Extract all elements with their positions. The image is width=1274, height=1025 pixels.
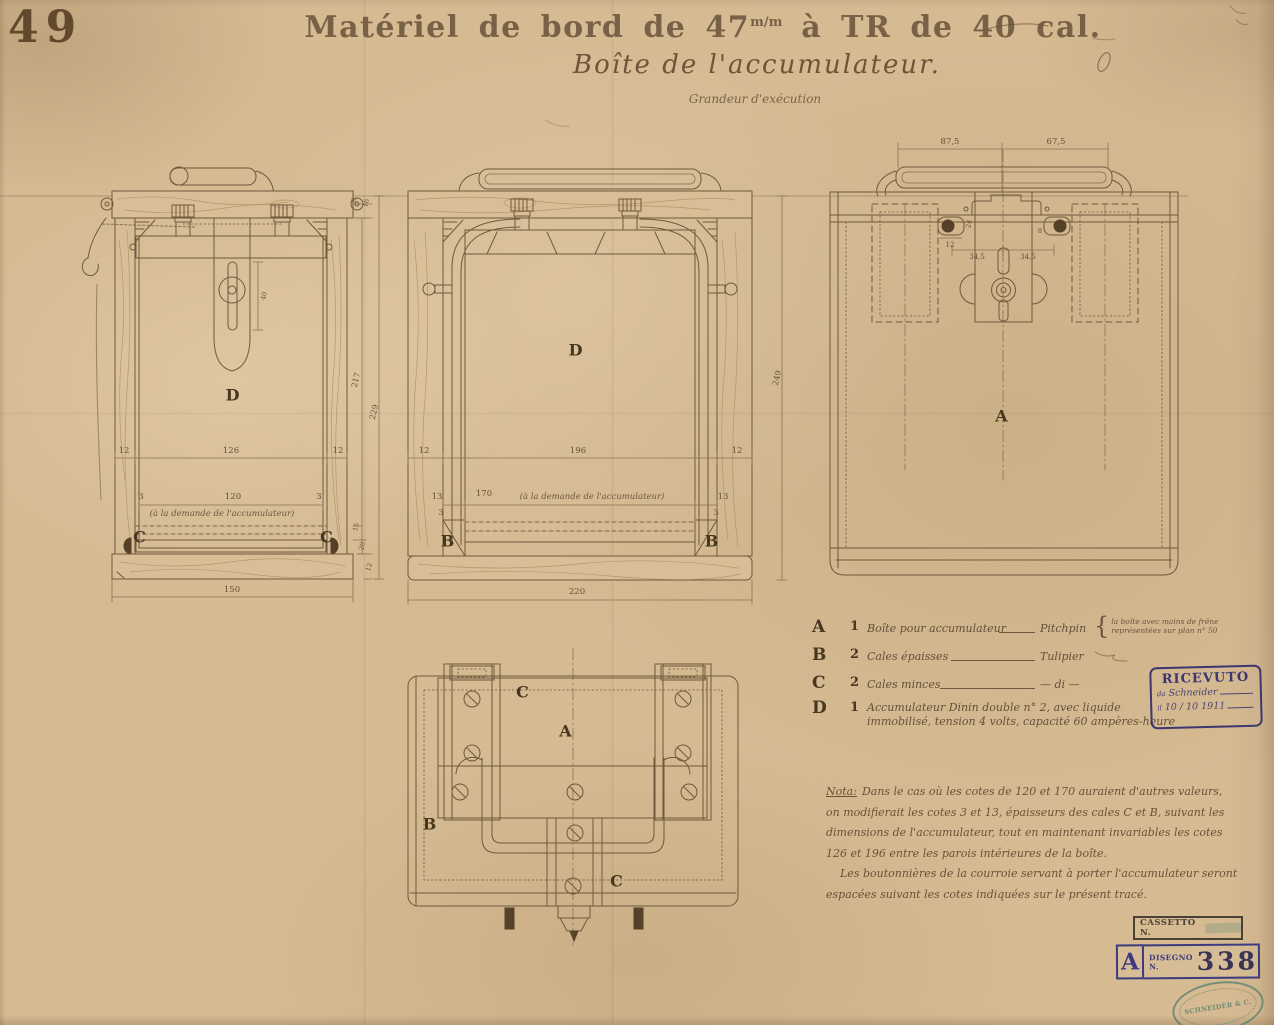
legend-qty: 2 (850, 675, 859, 690)
legend-qty: 1 (850, 619, 859, 634)
legend-part-name: Boîte pour accumulateur (867, 622, 1006, 635)
legend-note: { la boîte avec mains de frênereprésenté… (1094, 617, 1219, 635)
legend-letter: D (812, 698, 827, 718)
cassetto-stamp: CASSETTO N. (1133, 916, 1243, 940)
disegno-letter: A (1118, 946, 1144, 977)
legend-letter: A (812, 617, 825, 637)
ricevuto-title: RICEVUTO (1156, 670, 1254, 688)
nota-line: Nota:Dans le cas où les cotes de 120 et … (826, 782, 1256, 803)
disegno-stamp: A DISEGNO N. 338 (1116, 943, 1260, 979)
left-view-linework (82, 167, 384, 602)
legend-row-a: A 1 Boîte pour accumulateur Pitchpin { l… (812, 617, 1272, 647)
legend-note-text: la boîte avec mains de frênereprésentées… (1111, 617, 1218, 635)
legend-letter: C (812, 673, 826, 693)
nota-line: 126 et 196 entre les parois intérieures … (826, 844, 1256, 865)
cassetto-label: CASSETTO N. (1140, 918, 1199, 938)
nota-line: Les boutonnières de la courroie servant … (826, 864, 1256, 885)
legend-part-name: Cales épaisses (867, 650, 948, 663)
nota-label: Nota: (826, 785, 857, 798)
legend-part-name: Cales minces (867, 678, 941, 691)
bottom-view-linework (408, 648, 738, 948)
legend-material: Pitchpin (1040, 622, 1086, 635)
drawing-sheet: 49 Matériel de bord de 47m/m à TR de 40 … (0, 0, 1274, 1025)
legend-dash-line (951, 660, 1035, 661)
legend-material: — di — (1040, 678, 1080, 691)
disegno-right: DISEGNO N. 338 (1144, 946, 1258, 978)
nota-line: espacées suivant les cotes indiquées sur… (826, 885, 1256, 906)
center-view-linework (408, 169, 787, 604)
disegno-label: DISEGNO N. (1149, 952, 1193, 970)
ricevuto-stamp: RICEVUTO da Schneider il 10 / 10 1911 (1149, 665, 1263, 730)
legend-part-name: Accumulateur Dinin double n° 2, avec liq… (867, 701, 1175, 729)
nota-line: on modifierait les cotes 3 et 13, épaiss… (826, 803, 1256, 824)
legend-dash-line (999, 632, 1035, 633)
nota-block: Nota:Dans le cas où les cotes de 120 et … (826, 782, 1256, 905)
cassetto-smudge (1205, 922, 1241, 933)
legend-qty: 2 (850, 647, 859, 662)
disegno-number: 338 (1197, 947, 1258, 976)
legend-dash-line (940, 688, 1035, 689)
legend-material: Tulipier (1040, 650, 1084, 663)
nota-line: dimensions de l'accumulateur, tout en ma… (826, 823, 1256, 844)
brace-glyph: { (1094, 622, 1109, 631)
legend-letter: B (812, 645, 826, 665)
ricevuto-line: il 10 / 10 1911 (1157, 699, 1255, 716)
legend-qty: 1 (850, 700, 859, 715)
right-view-linework (830, 143, 1178, 575)
